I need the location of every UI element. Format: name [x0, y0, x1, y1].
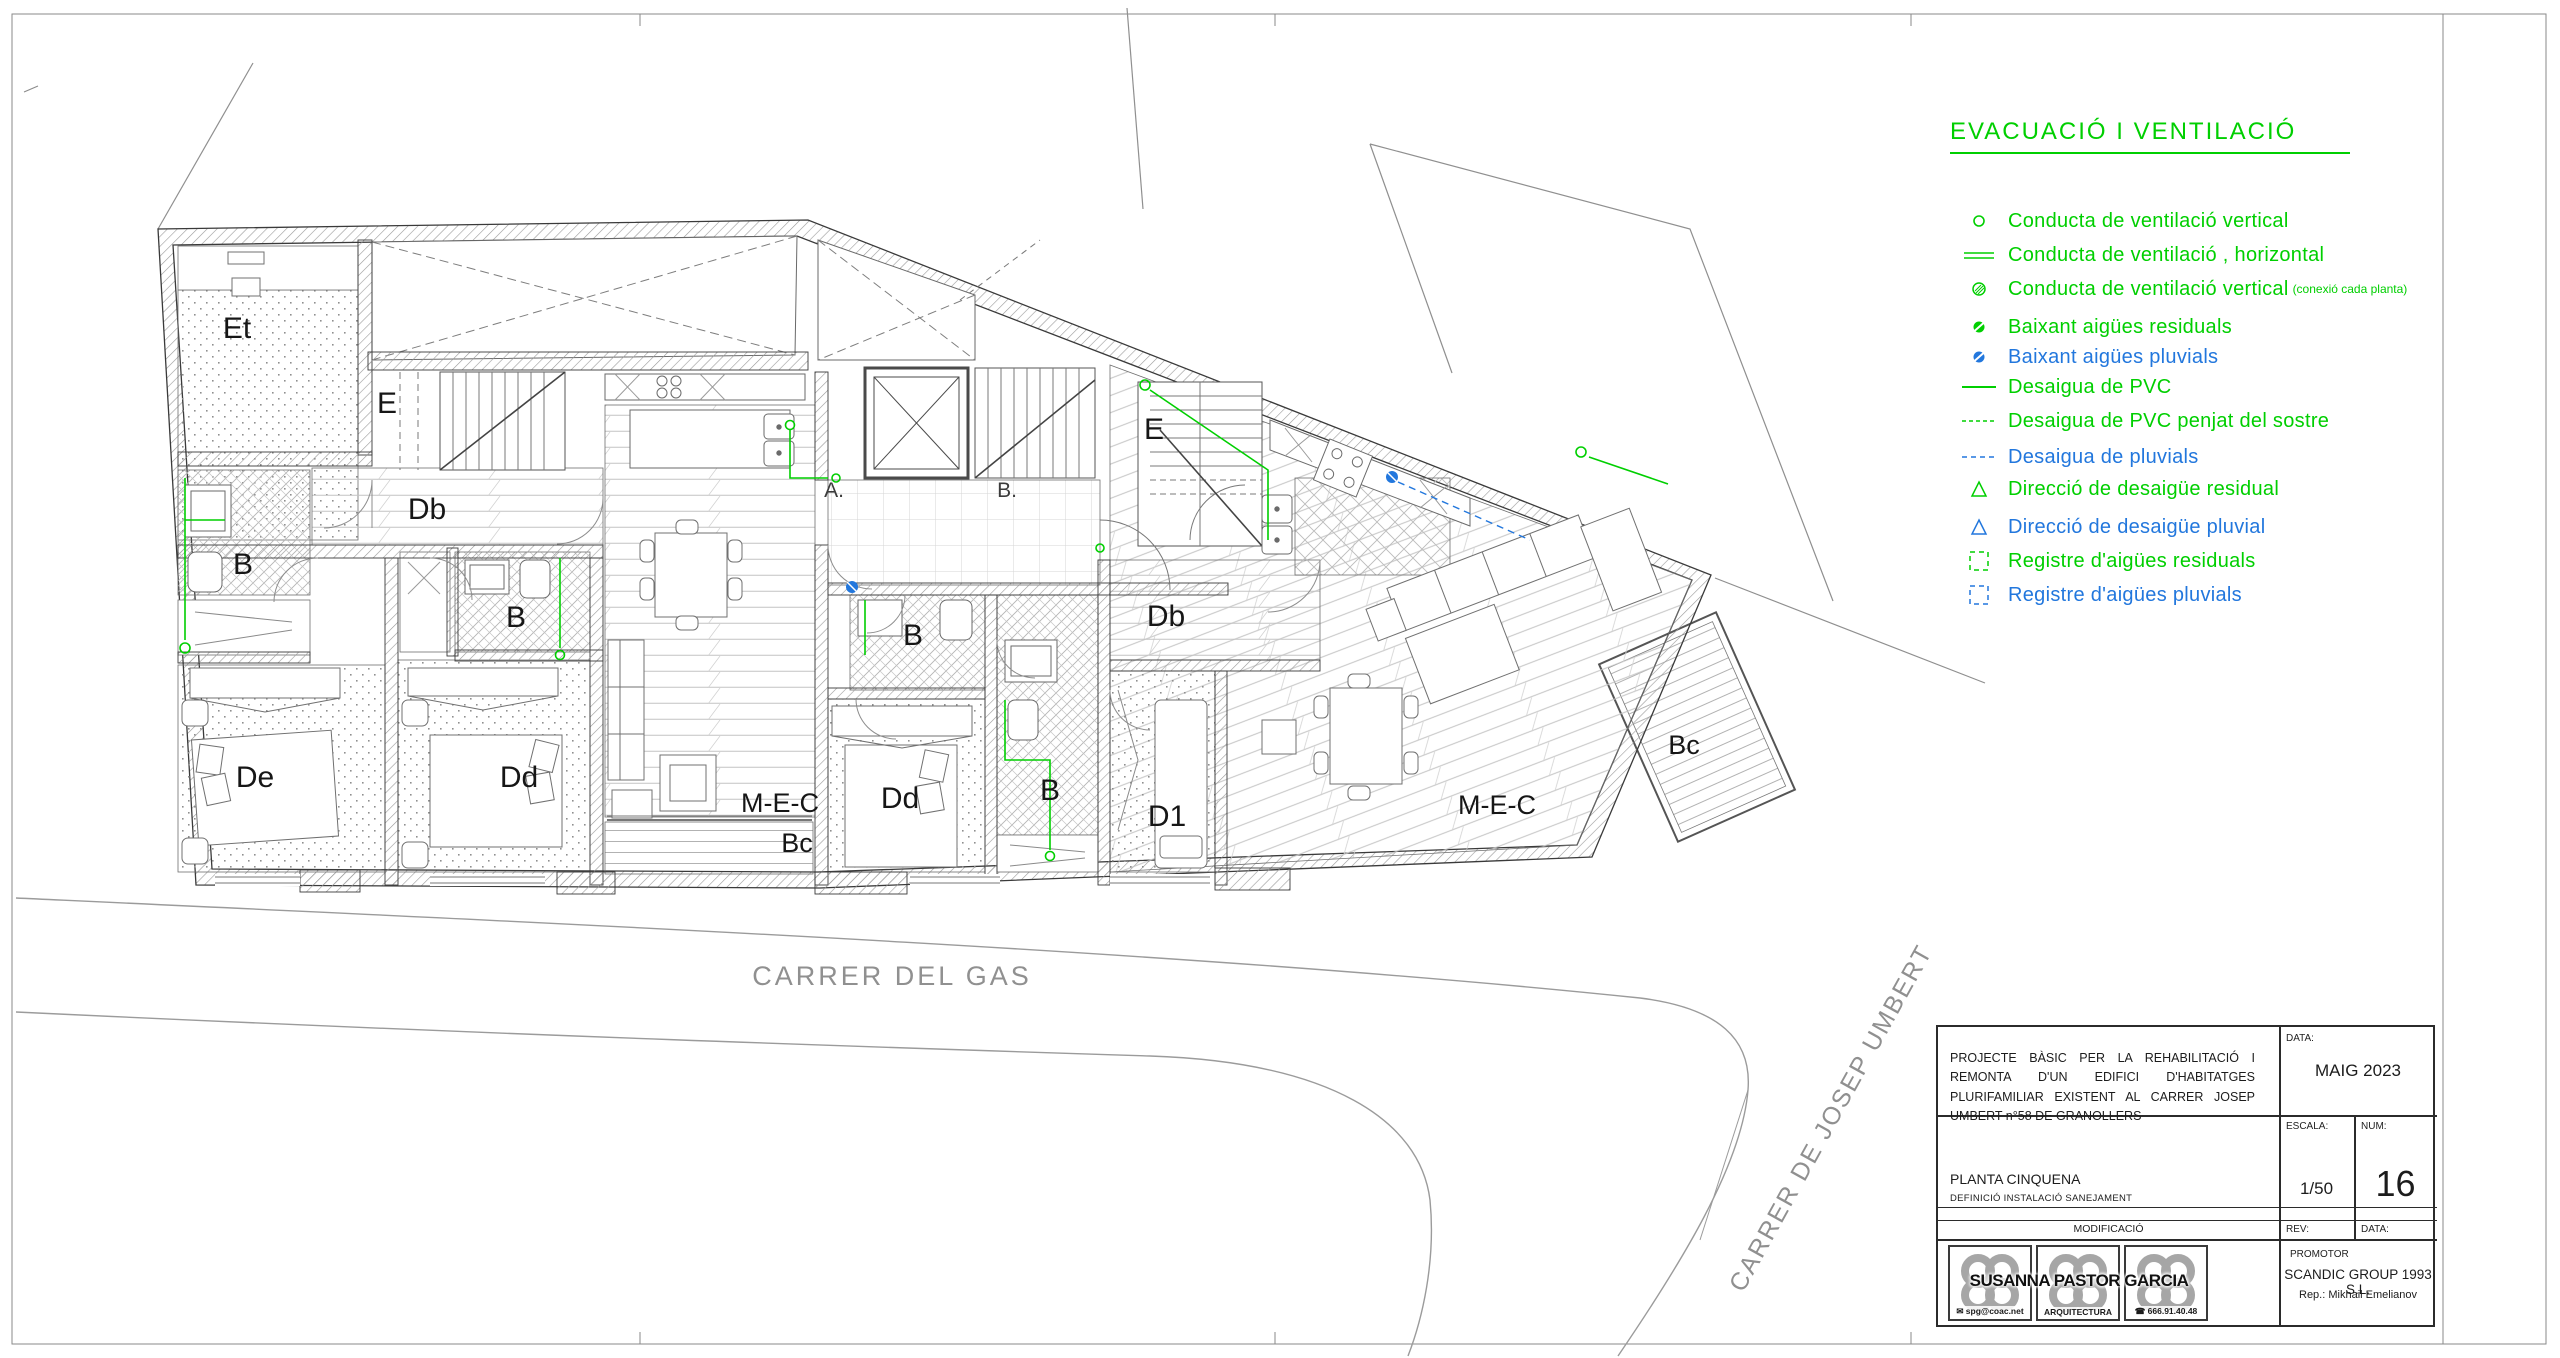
modificacio-label: MODIFICACIÓ — [1938, 1223, 2279, 1235]
legend: EVACUACIÓ I VENTILACIÓ Conducta de venti… — [1950, 118, 2430, 154]
legend-item-label: Desaigua de PVC penjat del sostre — [2008, 410, 2329, 433]
legend-item: Direcció de desaigüe pluvial — [1950, 514, 2265, 540]
tb-divider — [1938, 1207, 2437, 1208]
plan-title: PLANTA CINQUENA — [1950, 1171, 2080, 1187]
legend-underline — [1950, 152, 2350, 154]
logo-email: ✉ spg@coac.net — [1950, 1306, 2030, 1317]
logo-phone: ☎ 666.91.40.48 — [2126, 1306, 2206, 1317]
architect-logo: ✉ spg@coac.net ARQUITECTURA ☎ 666.91.40.… — [1948, 1245, 2210, 1321]
tb-divider — [1938, 1220, 2437, 1221]
elevator — [865, 368, 968, 478]
promotor-rep: Rep.: Mikhail Emelianov — [2279, 1289, 2437, 1301]
legend-item-label: Direcció de desaigüe residual — [2008, 478, 2279, 501]
legend-item-label: Conducta de ventilació vertical — [2008, 278, 2289, 301]
room-label-mec-right: M-E-C — [1458, 790, 1536, 820]
logo-dept: ARQUITECTURA — [2038, 1307, 2118, 1317]
street-label-umbert: CARRER DE JOSEP UMBERT — [1724, 940, 1938, 1296]
data-value: MAIG 2023 — [2279, 1061, 2437, 1081]
legend-item-label: Desaigua de PVC — [2008, 376, 2171, 399]
stair-left — [400, 372, 565, 470]
street-labels: CARRER DEL GAS CARRER DE JOSEP UMBERT — [752, 940, 1938, 1296]
title-block: PROJECTE BÀSIC PER LA REHABILITACIÓ I RE… — [1936, 1025, 2435, 1327]
room-label-bc-right: Bc — [1668, 730, 1700, 760]
escala-value: 1/50 — [2279, 1179, 2354, 1199]
rev-label: REV: — [2286, 1224, 2309, 1235]
downpipe-pluvial-icon — [1950, 350, 2008, 364]
room-label-db-right: Db — [1147, 600, 1185, 633]
direction-residual-icon — [1950, 480, 2008, 498]
legend-title: EVACUACIÓ I VENTILACIÓ — [1950, 118, 2430, 146]
room-label-b-mid2: B — [1040, 774, 1060, 807]
room-label-e-right: E — [1144, 413, 1164, 446]
register-residual-icon — [1950, 550, 2008, 572]
legend-item: Desaigua de pluvials — [1950, 444, 2199, 470]
vent-circle-icon — [1950, 214, 2008, 228]
legend-item: Conducta de ventilació vertical — [1950, 208, 2289, 234]
pluvial-dashed-line-icon — [1950, 454, 2008, 460]
direction-pluvial-icon — [1950, 518, 2008, 536]
legend-item: Conducta de ventilació vertical (conexió… — [1950, 276, 2407, 302]
room-label-db-left: Db — [408, 493, 446, 526]
room-label-e-left: E — [377, 387, 397, 420]
legend-item-label: Registre d'aigües pluvials — [2008, 584, 2242, 607]
register-pluvial-icon — [1950, 584, 2008, 606]
legend-item-label: Conducta de ventilació , horizontal — [2008, 244, 2324, 267]
room-label-dd-left: Dd — [500, 761, 538, 794]
legend-item: Conducta de ventilació , horizontal — [1950, 242, 2324, 268]
legend-item: Desaigua de PVC penjat del sostre — [1950, 408, 2329, 434]
room-label-b-left: B — [233, 548, 253, 581]
pvc-dashed-line-icon — [1950, 418, 2008, 424]
room-label-d1: D1 — [1148, 800, 1186, 833]
vent-circle-hatched-icon — [1950, 281, 2008, 297]
data-label: DATA: — [2286, 1033, 2314, 1044]
promotor-label: PROMOTOR — [2290, 1249, 2349, 1260]
pvc-line-icon — [1950, 384, 2008, 390]
legend-item-label: Conducta de ventilació vertical — [2008, 210, 2289, 233]
legend-item: Registre d'aigües pluvials — [1950, 582, 2242, 608]
data2-label: DATA: — [2361, 1224, 2389, 1235]
legend-item: Baixant aigües pluvials — [1950, 344, 2218, 370]
stair-mid — [960, 240, 1095, 478]
logo-name: SUSANNA PASTOR GARCIA — [1948, 1271, 2210, 1291]
room-label-b-mid: B — [903, 619, 923, 652]
escala-label: ESCALA: — [2286, 1121, 2328, 1132]
vent-horizontal-icon — [1950, 250, 2008, 260]
plan-subtitle: DEFINICIÓ INSTALACIÓ SANEJAMENT — [1950, 1193, 2132, 1204]
kitchen-left — [605, 374, 805, 468]
downpipe-residual-icon — [1950, 320, 2008, 334]
legend-item-label: Registre d'aigües residuals — [2008, 550, 2256, 573]
num-label: NUM: — [2361, 1121, 2387, 1132]
legend-item-label: Baixant aigües residuals — [2008, 316, 2232, 339]
project-description: PROJECTE BÀSIC PER LA REHABILITACIÓ I RE… — [1950, 1049, 2255, 1127]
legend-item-label: Desaigua de pluvials — [2008, 446, 2199, 469]
point-label-b: B. — [997, 479, 1017, 502]
legend-item-note: (conexió cada planta) — [2293, 282, 2408, 296]
room-label-b-left2: B — [506, 601, 526, 634]
legend-item: Baixant aigües residuals — [1950, 314, 2232, 340]
legend-item-label: Baixant aigües pluvials — [2008, 346, 2218, 369]
room-label-de: De — [236, 761, 274, 794]
room-label-bc-left: Bc — [781, 828, 813, 858]
stair-right — [1138, 382, 1262, 546]
point-label-a: A. — [824, 479, 844, 502]
legend-item-label: Direcció de desaigüe pluvial — [2008, 516, 2265, 539]
room-label-dd-mid: Dd — [881, 782, 919, 815]
room-label-et: Et — [223, 312, 252, 345]
legend-item: Desaigua de PVC — [1950, 374, 2171, 400]
num-value: 16 — [2354, 1163, 2437, 1205]
legend-item: Direcció de desaigüe residual — [1950, 476, 2279, 502]
drawing-sheet: Et E Db B B De Dd M-E-C Bc A. B. B Dd B … — [0, 0, 2560, 1358]
tb-divider — [1938, 1239, 2437, 1241]
legend-item: Registre d'aigües residuals — [1950, 548, 2256, 574]
room-label-mec-left: M-E-C — [741, 788, 819, 818]
street-label-gas: CARRER DEL GAS — [752, 961, 1032, 991]
